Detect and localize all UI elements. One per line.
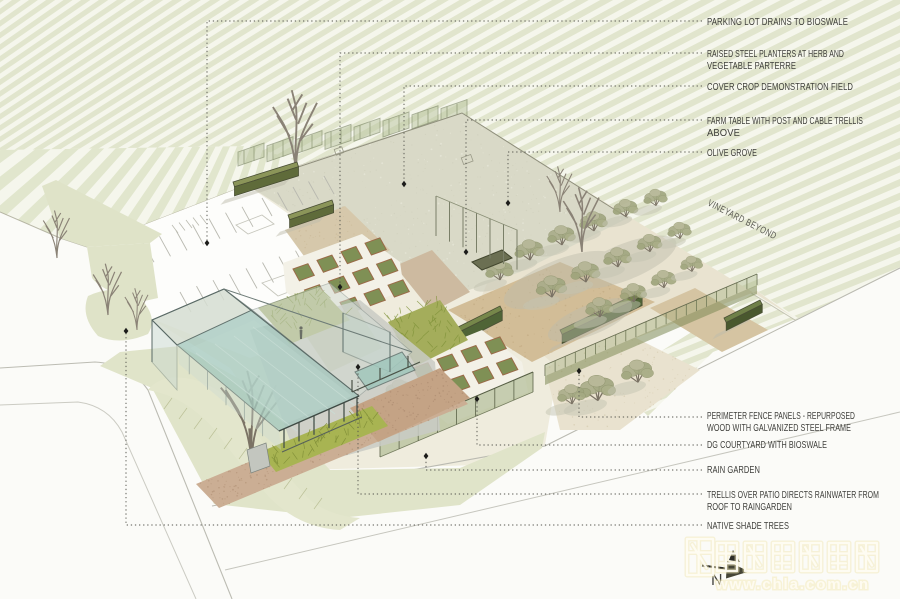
svg-text:RAIN GARDEN: RAIN GARDEN [707, 465, 760, 476]
svg-text:WOOD WITH GALVANIZED STEEL FRA: WOOD WITH GALVANIZED STEEL FRAME [707, 423, 851, 434]
svg-text:ABOVE: ABOVE [707, 128, 740, 139]
svg-text:PERIMETER FENCE PANELS - REPUR: PERIMETER FENCE PANELS - REPURPOSED [707, 411, 855, 422]
svg-text:ROOF TO RAINGARDEN: ROOF TO RAINGARDEN [707, 502, 792, 513]
svg-text:NATIVE SHADE TREES: NATIVE SHADE TREES [707, 521, 789, 532]
svg-text:RAISED STEEL PLANTERS AT HERB: RAISED STEEL PLANTERS AT HERB AND [707, 49, 844, 60]
svg-text:FARM TABLE WITH POST AND CABLE: FARM TABLE WITH POST AND CABLE TRELLIS [707, 116, 863, 127]
svg-text:OLIVE GROVE: OLIVE GROVE [707, 148, 757, 159]
svg-text:DG COURTYARD WITH BIOSWALE: DG COURTYARD WITH BIOSWALE [707, 440, 827, 451]
svg-text:COVER CROP DEMONSTRATION FIELD: COVER CROP DEMONSTRATION FIELD [707, 82, 853, 93]
svg-text:www.chla.com.cn: www.chla.com.cn [715, 576, 868, 593]
svg-text:VEGETABLE PARTERRE: VEGETABLE PARTERRE [707, 61, 796, 72]
svg-text:PARKING LOT DRAINS TO BIOSWALE: PARKING LOT DRAINS TO BIOSWALE [707, 17, 848, 28]
svg-text:TRELLIS OVER PATIO DIRECTS RAI: TRELLIS OVER PATIO DIRECTS RAINWATER FRO… [707, 490, 879, 501]
